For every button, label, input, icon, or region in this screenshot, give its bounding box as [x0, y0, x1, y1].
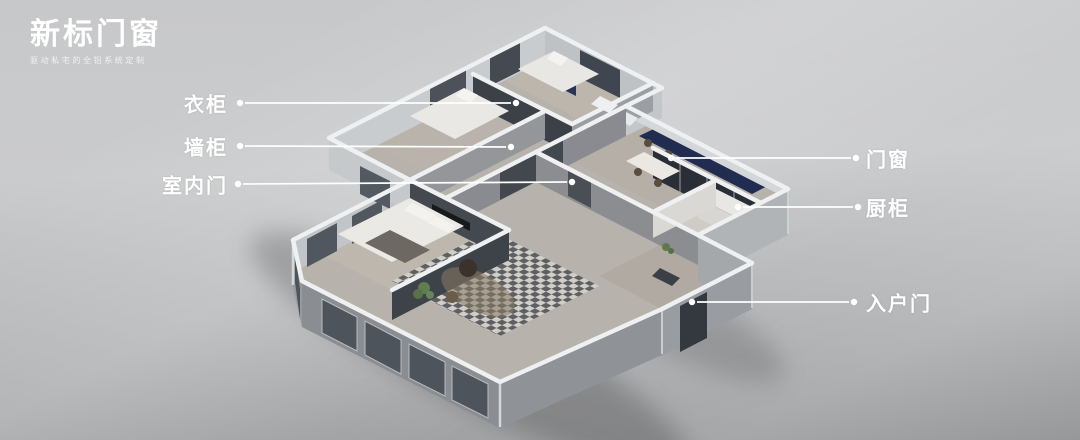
brand-logo: 新标门窗 驱动私宅的全铝系统定制 [30, 18, 162, 66]
promo-banner: 新标门窗 驱动私宅的全铝系统定制 衣柜 墙柜 室内门 门窗 厨柜 入户门 [0, 0, 1080, 440]
label-interior-door: 室内门 [162, 170, 228, 199]
label-doors-windows: 门窗 [866, 144, 910, 173]
brand-name: 新标门窗 [30, 18, 162, 51]
label-wardrobe: 衣柜 [184, 89, 228, 118]
label-kitchen-cabinet: 厨柜 [866, 193, 910, 222]
brand-tagline: 驱动私宅的全铝系统定制 [30, 55, 162, 66]
label-entrance-door: 入户门 [866, 288, 932, 317]
label-wall-cabinet: 墙柜 [184, 132, 228, 161]
apartment-3d-render [0, 0, 1080, 440]
